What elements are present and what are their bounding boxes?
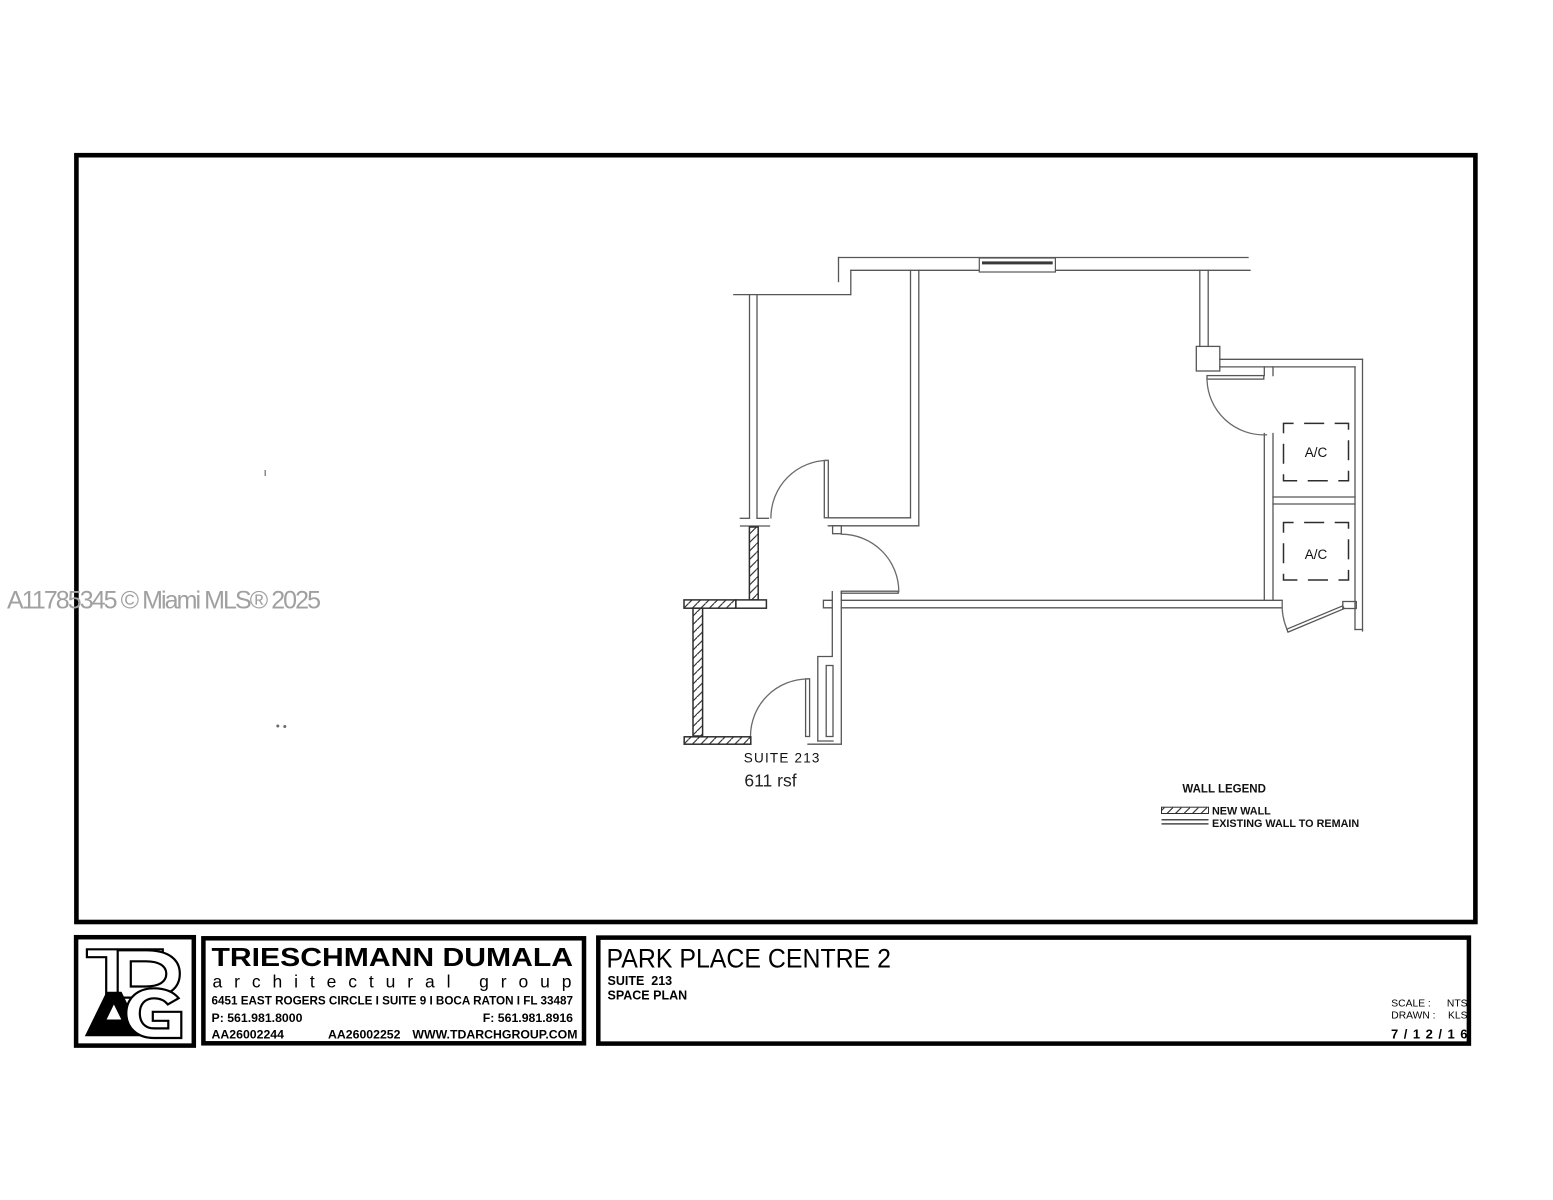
svg-text:A11785345 © Miami MLS® 2025: A11785345 © Miami MLS® 2025 [7,587,321,615]
svg-text:NEW WALL: NEW WALL [1212,806,1271,818]
svg-text:EXISTING WALL TO REMAIN: EXISTING WALL TO REMAIN [1212,818,1359,830]
svg-text:A/C: A/C [1305,445,1328,460]
svg-text:P: 561.981.8000: P: 561.981.8000 [212,1011,303,1025]
svg-text:AA26002244: AA26002244 [212,1027,285,1041]
svg-text:KLS: KLS [1448,1011,1468,1022]
svg-text:WWW.TDARCHGROUP.COM: WWW.TDARCHGROUP.COM [412,1027,577,1041]
svg-text:SUITE 213: SUITE 213 [608,974,673,988]
svg-text:WALL LEGEND: WALL LEGEND [1182,783,1265,795]
svg-text:7 / 1 2 / 1 6: 7 / 1 2 / 1 6 [1391,1027,1468,1042]
svg-text:A/C: A/C [1305,547,1328,562]
svg-text:611 rsf: 611 rsf [744,771,796,791]
svg-text:SPACE PLAN: SPACE PLAN [608,989,688,1003]
svg-text:DRAWN :: DRAWN : [1391,1011,1435,1022]
svg-text:PARK PLACE CENTRE 2: PARK PLACE CENTRE 2 [607,943,892,973]
svg-text:6451 EAST ROGERS CIRCLE I SU: 6451 EAST ROGERS CIRCLE I SUITE 9 I BOCA… [212,993,574,1007]
svg-text:NTS: NTS [1447,999,1468,1010]
svg-text:F: 561.981.8916: F: 561.981.8916 [483,1011,573,1025]
svg-text:TRIESCHMANN DUMALA: TRIESCHMANN DUMALA [212,942,574,972]
svg-text:SCALE :: SCALE : [1391,999,1431,1010]
svg-text:AA26002252: AA26002252 [328,1027,401,1041]
svg-text:SUITE 213: SUITE 213 [744,751,821,766]
